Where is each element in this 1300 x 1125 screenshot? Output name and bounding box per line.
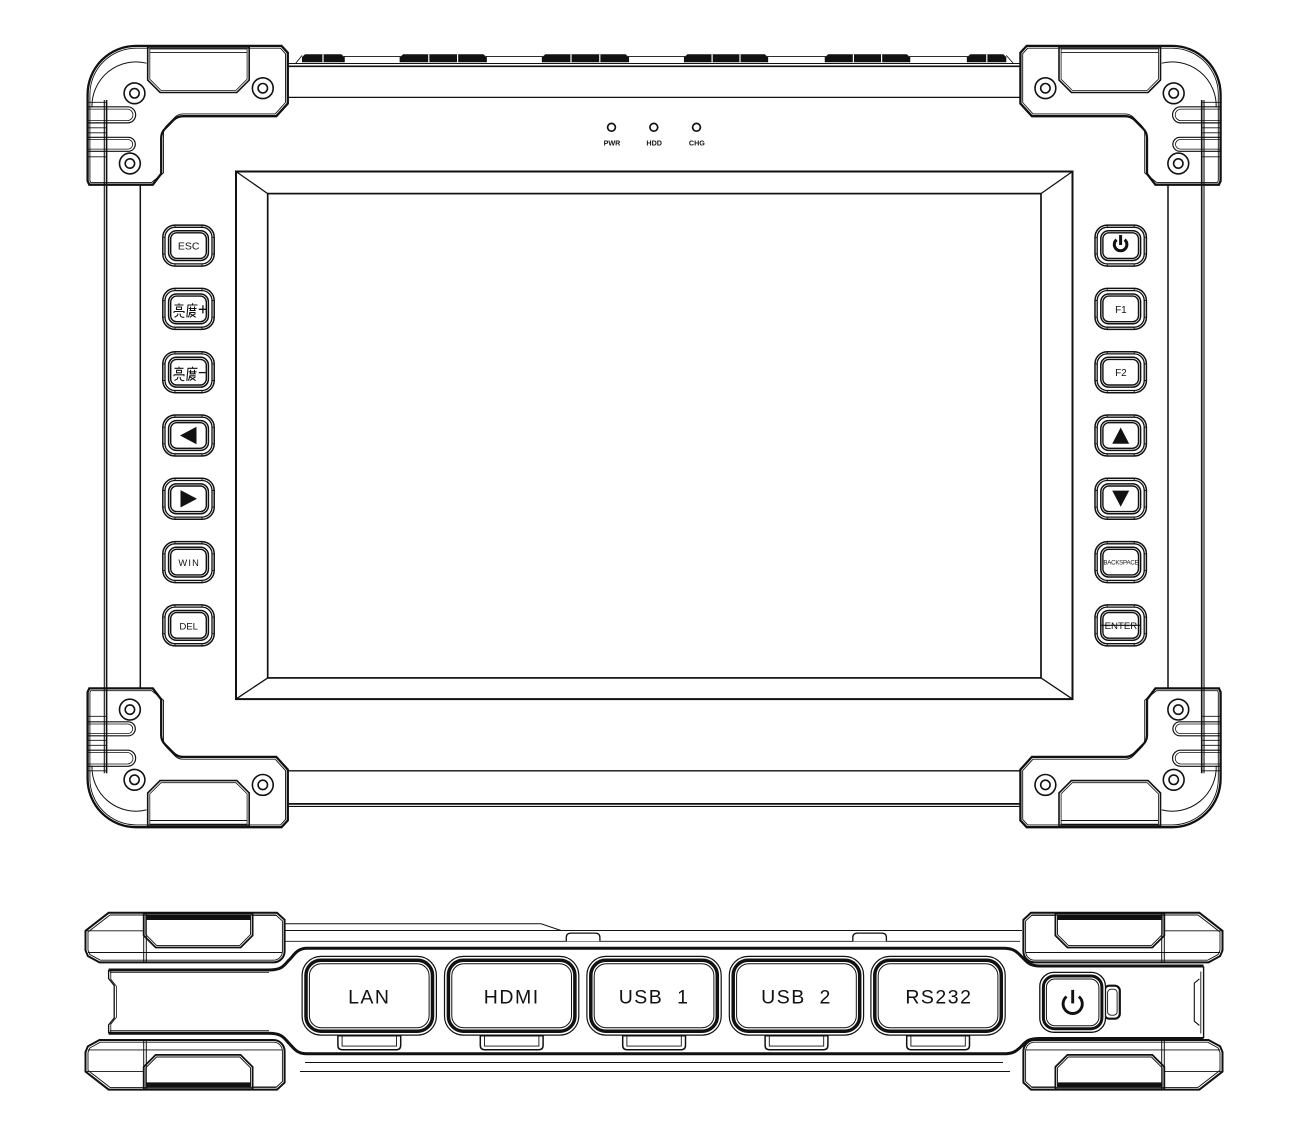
svg-text:USB 1: USB 1 bbox=[619, 987, 690, 1009]
svg-text:BACKSPACE: BACKSPACE bbox=[1103, 560, 1138, 567]
svg-text:LAN: LAN bbox=[348, 987, 390, 1009]
svg-text:HDMI: HDMI bbox=[484, 987, 540, 1009]
svg-text:F2: F2 bbox=[1115, 368, 1127, 379]
svg-text:ESC: ESC bbox=[178, 241, 200, 253]
svg-text:WIN: WIN bbox=[178, 558, 200, 568]
svg-text:DEL: DEL bbox=[179, 621, 198, 632]
svg-text:F1: F1 bbox=[1115, 305, 1127, 316]
svg-text:USB 2: USB 2 bbox=[761, 987, 832, 1009]
svg-text:RS232: RS232 bbox=[905, 987, 972, 1009]
svg-text:HDD: HDD bbox=[646, 139, 662, 148]
svg-text:ENTER: ENTER bbox=[1105, 621, 1138, 632]
svg-text:CHG: CHG bbox=[689, 139, 705, 148]
svg-text:PWR: PWR bbox=[604, 139, 622, 148]
